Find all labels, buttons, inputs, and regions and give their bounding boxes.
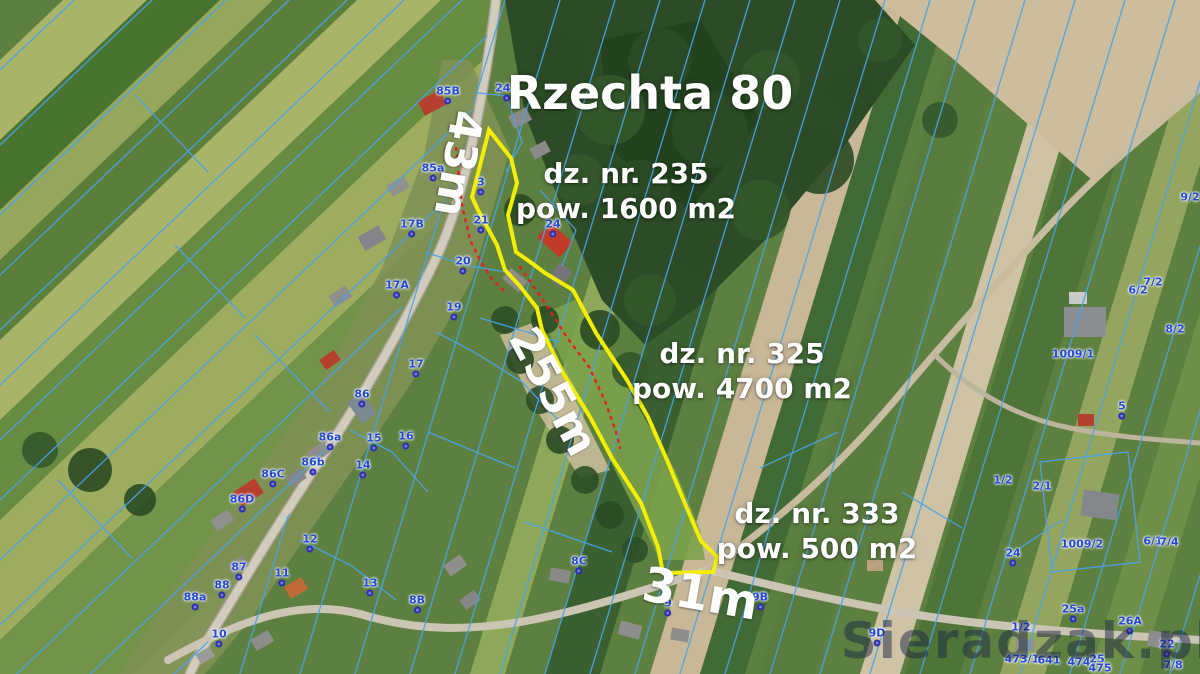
parcel-number-label: 86b <box>301 457 324 476</box>
address-point-icon <box>403 443 410 450</box>
address-point-icon <box>408 231 415 238</box>
address-point-icon <box>310 469 317 476</box>
parcel-333-annotation: dz. nr. 333 pow. 500 m2 <box>687 496 947 566</box>
parcel-number-text: 13 <box>362 578 377 589</box>
address-point-icon <box>478 227 485 234</box>
parcel-number-text: 10 <box>211 629 226 640</box>
address-point-icon <box>219 592 226 599</box>
address-point-icon <box>371 445 378 452</box>
parcel-number-label: 16 <box>398 431 413 450</box>
aerial-map: 85B24A85a317B2124201917A178686a151686b14… <box>0 0 1200 674</box>
parcel-number-label: 88a <box>184 592 207 611</box>
address-point-icon <box>359 401 366 408</box>
parcel-number-text: 2/1 <box>1032 481 1051 492</box>
address-point-icon <box>367 590 374 597</box>
parcel-number-label: 8C <box>571 556 587 575</box>
parcel-number-text: 86D <box>230 494 254 505</box>
parcel-number-text: 88a <box>184 592 207 603</box>
parcel-235-area: pow. 1600 m2 <box>496 191 756 226</box>
parcel-333-number: dz. nr. 333 <box>687 496 947 531</box>
parcel-number-text: 17 <box>408 359 423 370</box>
parcel-number-text: 21 <box>473 215 488 226</box>
parcel-number-label: 88 <box>214 580 229 599</box>
parcel-number-label: 1009/2 <box>1061 539 1103 550</box>
parcel-number-text: 11 <box>274 568 289 579</box>
parcel-number-text: 5 <box>1118 401 1126 412</box>
address-point-icon <box>269 481 276 488</box>
parcel-number-text: 8/2 <box>1165 324 1184 335</box>
parcel-number-text: 8C <box>571 556 587 567</box>
address-point-icon <box>413 371 420 378</box>
parcel-number-label: 1/2 <box>993 475 1012 486</box>
parcel-number-text: 15 <box>366 433 381 444</box>
parcel-number-text: 1/2 <box>993 475 1012 486</box>
parcel-number-label: 8/2 <box>1165 324 1184 335</box>
parcel-number-label: 21 <box>473 215 488 234</box>
watermark: Sieradzak.pl <box>841 612 1200 670</box>
parcel-number-text: 16 <box>398 431 413 442</box>
parcel-number-text: 88 <box>214 580 229 591</box>
address-point-icon <box>393 292 400 299</box>
parcel-number-text: 14 <box>355 460 370 471</box>
parcel-number-label: 14 <box>355 460 370 479</box>
parcel-number-label: 15 <box>366 433 381 452</box>
parcel-number-text: 17A <box>385 280 409 291</box>
address-point-icon <box>326 444 333 451</box>
address-point-icon <box>216 641 223 648</box>
parcel-number-text: 20 <box>455 256 470 267</box>
address-point-icon <box>279 580 286 587</box>
parcel-number-label: 86a <box>319 432 342 451</box>
address-point-icon <box>1010 560 1017 567</box>
parcel-number-label: 19 <box>446 302 461 321</box>
parcel-number-label: 17B <box>400 219 424 238</box>
parcel-number-text: 9/2 <box>1180 192 1199 203</box>
parcel-number-label: 17A <box>385 280 409 299</box>
parcel-number-text: 86b <box>301 457 324 468</box>
parcel-number-label: 6/2 <box>1128 285 1147 296</box>
parcel-235-annotation: dz. nr. 235 pow. 1600 m2 <box>496 156 756 226</box>
parcel-number-label: 5 <box>1118 401 1126 420</box>
parcel-number-label: 86C <box>261 469 284 488</box>
parcel-number-label: 7/4 <box>1159 537 1178 548</box>
parcel-325-annotation: dz. nr. 325 pow. 4700 m2 <box>612 336 872 406</box>
address-point-icon <box>236 574 243 581</box>
parcel-number-text: 86a <box>319 432 342 443</box>
address-point-icon <box>238 506 245 513</box>
address-point-icon <box>550 231 557 238</box>
parcel-number-text: 86C <box>261 469 284 480</box>
parcel-number-label: 13 <box>362 578 377 597</box>
map-title: Rzechta 80 <box>450 66 850 120</box>
parcel-number-label: 20 <box>455 256 470 275</box>
parcel-number-text: 8B <box>409 595 425 606</box>
parcel-number-label: 87 <box>231 562 246 581</box>
parcel-number-label: 9/2 <box>1180 192 1199 203</box>
parcel-number-text: 6/2 <box>1128 285 1147 296</box>
parcel-235-number: dz. nr. 235 <box>496 156 756 191</box>
parcel-number-label: 10 <box>211 629 226 648</box>
parcel-number-text: 19 <box>446 302 461 313</box>
address-point-icon <box>413 607 420 614</box>
parcel-number-label: 24 <box>1005 548 1020 567</box>
parcel-number-text: 17B <box>400 219 424 230</box>
parcel-number-text: 12 <box>302 534 317 545</box>
parcel-number-text: 87 <box>231 562 246 573</box>
parcel-325-number: dz. nr. 325 <box>612 336 872 371</box>
parcel-number-text: 86 <box>354 389 369 400</box>
parcel-number-label: 2/1 <box>1032 481 1051 492</box>
parcel-number-text: 7/4 <box>1159 537 1178 548</box>
address-point-icon <box>575 568 582 575</box>
address-point-icon <box>451 314 458 321</box>
parcel-325-area: pow. 4700 m2 <box>612 371 872 406</box>
parcel-number-label: 86 <box>354 389 369 408</box>
parcel-number-text: 24 <box>1005 548 1020 559</box>
parcel-number-label: 86D <box>230 494 254 513</box>
parcel-number-text: 1009/1 <box>1052 349 1094 360</box>
address-point-icon <box>307 546 314 553</box>
parcel-number-label: 17 <box>408 359 423 378</box>
parcel-number-label: 8B <box>409 595 425 614</box>
parcel-number-label: 1009/1 <box>1052 349 1094 360</box>
address-point-icon <box>460 268 467 275</box>
parcel-number-label: 11 <box>274 568 289 587</box>
address-point-icon <box>360 472 367 479</box>
parcel-333-area: pow. 500 m2 <box>687 531 947 566</box>
parcel-number-text: 1009/2 <box>1061 539 1103 550</box>
address-point-icon <box>191 604 198 611</box>
address-point-icon <box>1119 413 1126 420</box>
parcel-number-label: 12 <box>302 534 317 553</box>
